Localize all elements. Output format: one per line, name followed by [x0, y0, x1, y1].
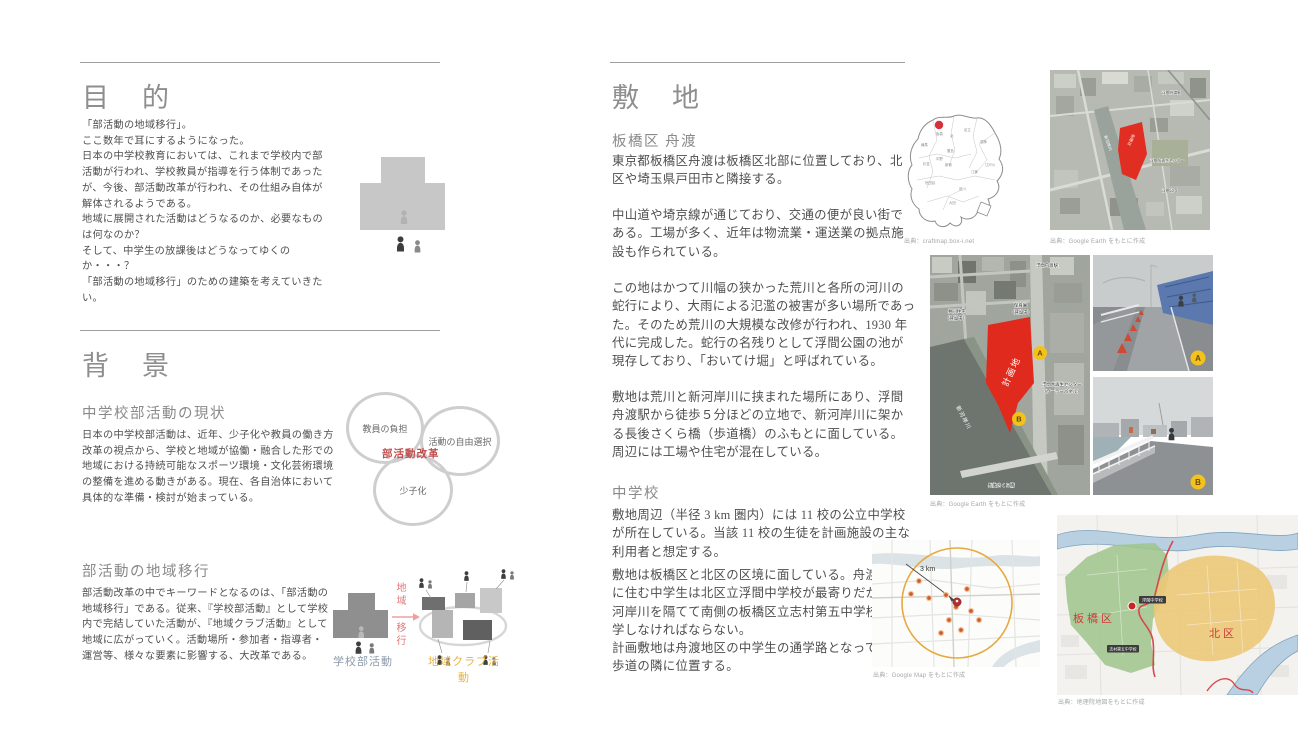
venn-label-teacher: 教員の負担: [362, 422, 407, 435]
student-icon: [510, 571, 514, 579]
funado-p2: 中山道や埼京線が通じており、交通の便が良い街で ある。工場が多く、近年は物流業・…: [612, 206, 917, 261]
funado-heading: 板橋区 舟渡: [612, 130, 697, 151]
ward-map-caption: 出典：craftmap.box-i.net: [904, 236, 974, 245]
community-club-label: 地域クラブ活動: [423, 653, 505, 685]
site-dot: [1128, 602, 1136, 610]
bridge-label: 長後さくら橋: [988, 482, 1015, 489]
background-title: 背 景: [82, 344, 172, 383]
student-icon: [428, 580, 432, 588]
svg-text:中野: 中野: [936, 156, 943, 161]
site-photo-b: B: [1093, 377, 1213, 495]
site-title: 敷 地: [612, 76, 702, 115]
svg-text:江戸川: 江戸川: [985, 162, 996, 167]
nursery-label-1: 保育園: [1014, 302, 1028, 309]
site-location-dot: [935, 121, 943, 129]
funado-p4: 敷地は荒川と新河岸川に挟まれた場所にあり、浮間 舟渡駅から徒歩５分ほどの立地で、…: [612, 388, 917, 461]
housing-label-1: 共同住宅: [948, 308, 966, 315]
purpose-title: 目 的: [82, 76, 172, 115]
aerial-caption: 出典：Google Earth をもとに作成: [930, 499, 1025, 508]
district-map: 浮間中学校 志村第五中学校 板橋区 北区: [1057, 515, 1298, 695]
pointer-line: [496, 580, 504, 589]
venn-circle-birthrate: 少子化: [373, 454, 453, 526]
radius-map: 3 km: [872, 540, 1040, 667]
student-icon: [501, 569, 505, 579]
venn-center-label: 部活動改革: [382, 446, 440, 461]
radius-map-caption: 出典：Google Map をもとに作成: [873, 670, 965, 679]
venn-label-birthrate: 少子化: [399, 484, 426, 497]
school-roof: [348, 593, 375, 610]
school-club-label: 学校部活動: [333, 653, 393, 669]
radius-label: 3 km: [920, 566, 935, 573]
arrow-word-region: 地域: [392, 582, 407, 608]
presentation-board: 目 的 「部活動の地域移行」。 ここ数年で耳にするようになった。 日本の中学校教…: [0, 0, 1300, 731]
school-chip-far-label: 志村第五中学校: [1109, 647, 1136, 652]
tokyo-ward-map: 板橋 練馬 北 足立 葛飾 豊島 中野 杉並 新宿 江戸川 世田谷 大田 品川 …: [903, 110, 1010, 234]
divider-background: [80, 330, 440, 331]
pointer-line: [488, 641, 490, 653]
student-icon: [464, 571, 468, 581]
shift-body: 部活動改革の中でキーワードとなるのは、「部活動の 地域移行」である。従来、『学校…: [82, 586, 334, 665]
shift-heading: 部活動の地域移行: [82, 560, 210, 581]
center-label-1: 浮間水再生センター: [1042, 381, 1082, 388]
school-chip-near-label: 浮間中学校: [1142, 597, 1164, 604]
club-box: [463, 620, 492, 640]
svg-text:足立: 足立: [964, 127, 971, 132]
svg-text:葛飾: 葛飾: [980, 139, 987, 144]
school-heading: 中学校: [612, 482, 660, 503]
club-box: [455, 593, 475, 608]
svg-text:豊島: 豊島: [947, 148, 954, 153]
funado-p3: この地はかつて川幅の狭かった荒川と各所の河川の 蛇行により、大雨による氾濫の被害…: [612, 279, 917, 370]
pointer-line: [466, 582, 467, 592]
student-icon: [397, 236, 404, 251]
student-icon: [356, 641, 362, 653]
funado-p1: 東京都板橋区舟渡は板橋区北部に位置しており、北 区や埼玉県戸田市と隣接する。: [612, 152, 917, 189]
svg-text:大田: 大田: [949, 200, 956, 205]
svg-text:品川: 品川: [959, 187, 966, 191]
itabashi-label: 板橋区: [1073, 611, 1115, 625]
center-label: 浮間水再生センター: [1150, 158, 1184, 163]
svg-text:板橋: 板橋: [936, 131, 943, 136]
student-icon: [415, 240, 421, 252]
school-building-icon: [358, 150, 453, 258]
marker-a-label: A: [1037, 349, 1043, 358]
svg-text:新宿: 新宿: [945, 162, 952, 167]
svg-text:世田谷: 世田谷: [925, 180, 936, 185]
current-state-heading: 中学校部活動の現状: [82, 402, 226, 423]
park-label: 浮間公園: [1162, 188, 1177, 193]
student-icon: [419, 578, 423, 588]
divider-site: [610, 62, 905, 63]
student-icon: [369, 643, 374, 653]
marker-b-label: B: [1016, 415, 1022, 424]
photo-a-label: A: [1195, 354, 1201, 363]
satellite-caption: 出典：Google Earth をもとに作成: [1050, 236, 1145, 245]
kita-label: 北区: [1209, 627, 1237, 640]
svg-text:杉並: 杉並: [923, 161, 930, 166]
transfer-arrowhead: [413, 613, 420, 621]
satellite-map: 浮間舟渡駅 浮間水再生センター 浮間公園 新河岸川 計画地: [1050, 70, 1210, 230]
nursery-label-2: （建設中）: [1010, 309, 1032, 316]
station-label: 浮間舟渡駅: [1162, 90, 1181, 95]
housing-label-2: （建設中）: [945, 315, 967, 322]
svg-text:江東: 江東: [971, 169, 978, 174]
site-photo-a: A: [1093, 255, 1213, 371]
current-state-body: 日本の中学校部活動は、近年、少子化や教員の働き方 改革の視点から、学校と地域が協…: [82, 428, 334, 507]
divider-purpose: [80, 62, 440, 63]
aerial-site-map: A B 計画地 新河岸川 浮間舟渡駅↑ 保育園 （建設中） 共同住宅 （建設中）…: [930, 255, 1090, 495]
club-box: [432, 610, 453, 638]
station-label: 浮間舟渡駅↑: [1036, 262, 1060, 269]
venn-diagram: 教員の負担 活動の自由選択 少子化 部活動改革: [340, 388, 515, 528]
district-map-caption: 出典：地理院地図をもとに作成: [1058, 697, 1145, 706]
arrow-word-transfer: 移行: [392, 622, 407, 648]
purpose-body: 「部活動の地域移行」。 ここ数年で耳にするようになった。 日本の中学校教育におい…: [82, 118, 334, 306]
svg-text:練馬: 練馬: [921, 142, 928, 147]
club-box: [480, 588, 502, 613]
pointer-line: [426, 590, 431, 598]
photo-b-label: B: [1195, 478, 1201, 487]
club-box: [422, 597, 445, 610]
